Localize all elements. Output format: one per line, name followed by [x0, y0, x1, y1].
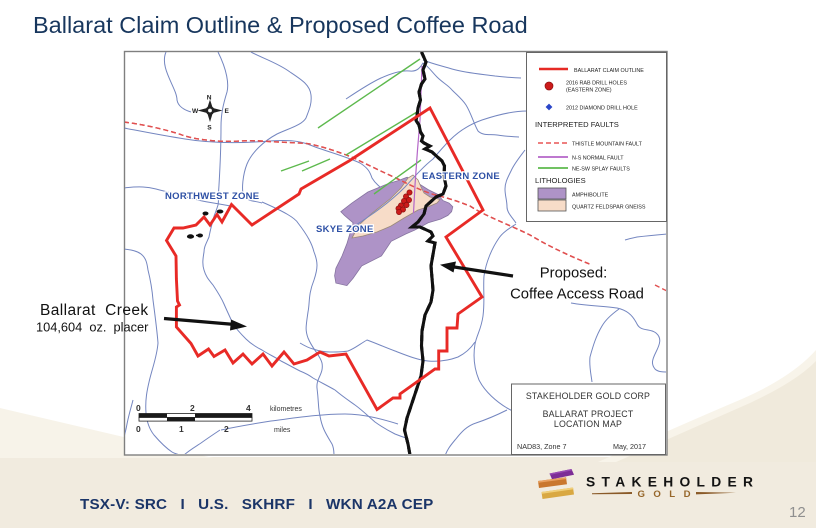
svg-text:miles: miles	[274, 427, 291, 434]
svg-text:Ballarat Claim Outline & Propo: Ballarat Claim Outline & Proposed Coffee…	[33, 12, 528, 38]
svg-text:TSX-V: SRC I U.S. SKHRF: TSX-V: SRC I U.S. SKHRF I WKN A2A CEP	[80, 496, 433, 513]
svg-text:NE-SW SPLAY FAULTS: NE-SW SPLAY FAULTS	[572, 167, 630, 173]
svg-text:S: S	[207, 125, 212, 132]
svg-text:0: 0	[136, 424, 141, 434]
svg-text:N: N	[207, 95, 212, 102]
svg-text:4: 4	[246, 403, 251, 413]
svg-text:SKYE ZONE: SKYE ZONE	[316, 224, 374, 235]
svg-text:AMPHIBOLITE: AMPHIBOLITE	[572, 193, 609, 199]
svg-text:N-S NORMAL FAULT: N-S NORMAL FAULT	[572, 156, 624, 162]
svg-text:INTERPRETED FAULTS: INTERPRETED FAULTS	[535, 120, 619, 129]
svg-text:2012 DIAMOND DRILL HOLE: 2012 DIAMOND DRILL HOLE	[566, 106, 638, 112]
svg-text:May, 2017: May, 2017	[613, 442, 646, 451]
svg-text:0: 0	[136, 403, 141, 413]
svg-text:BALLARAT CLAIM OUTLINE: BALLARAT CLAIM OUTLINE	[574, 68, 644, 74]
svg-text:STAKEHOLDER GOLD CORP: STAKEHOLDER GOLD CORP	[526, 391, 650, 401]
svg-text:LITHOLOGIES: LITHOLOGIES	[535, 176, 586, 185]
svg-text:NAD83, Zone 7: NAD83, Zone 7	[517, 442, 567, 451]
svg-text:NORTHWEST ZONE: NORTHWEST ZONE	[165, 191, 259, 202]
svg-text:QUARTZ FELDSPAR GNEISS: QUARTZ FELDSPAR GNEISS	[572, 205, 646, 211]
svg-text:(EASTERN ZONE): (EASTERN ZONE)	[566, 88, 612, 94]
svg-text:Proposed:: Proposed:	[540, 266, 607, 282]
svg-text:104,604 oz. placer: 104,604 oz. placer	[36, 320, 149, 335]
svg-text:2: 2	[224, 424, 229, 434]
svg-text:BALLARAT PROJECT: BALLARAT PROJECT	[543, 409, 634, 419]
svg-text:Coffee Access Road: Coffee Access Road	[510, 287, 644, 303]
svg-text:E: E	[225, 108, 230, 115]
svg-text:2016 RAB DRILL HOLES: 2016 RAB DRILL HOLES	[566, 81, 627, 87]
svg-text:LOCATION MAP: LOCATION MAP	[554, 419, 622, 429]
svg-text:2: 2	[190, 403, 195, 413]
svg-text:1: 1	[179, 424, 184, 434]
svg-text:EASTERN ZONE: EASTERN ZONE	[422, 171, 500, 182]
svg-text:THISTLE MOUNTAIN FAULT: THISTLE MOUNTAIN FAULT	[572, 142, 643, 148]
svg-text:Ballarat Creek: Ballarat Creek	[40, 302, 149, 319]
svg-text:12: 12	[789, 504, 806, 521]
svg-text:W: W	[192, 108, 199, 115]
svg-text:kilometres: kilometres	[270, 406, 302, 413]
